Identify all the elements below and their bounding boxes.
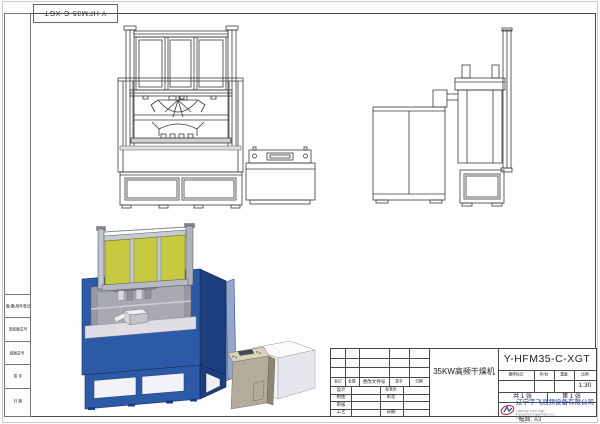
isometric-view-drawing bbox=[68, 223, 318, 415]
info-header-mark: 图样标记 bbox=[498, 370, 534, 380]
role-standardize: 标准化 bbox=[380, 386, 403, 394]
role-approve: 审定 bbox=[380, 394, 403, 402]
role-draft: 制图 bbox=[331, 394, 351, 402]
margin-cell-master-no: 底图总号 bbox=[5, 341, 30, 365]
info-header-qty: 件/台 bbox=[534, 370, 554, 380]
role-design: 设计 bbox=[331, 386, 351, 394]
margin-cell-signature: 签 字 bbox=[5, 364, 30, 389]
rev-header-sign: 签字 bbox=[389, 377, 409, 386]
company-name: 辽宁宇飞高频设备有限公司 bbox=[516, 396, 596, 406]
margin-cell-old-master-no: 旧底图总号 bbox=[5, 317, 30, 342]
rev-header-count: 处数 bbox=[345, 377, 359, 386]
role-process: 工艺 bbox=[331, 409, 351, 417]
side-view-drawing bbox=[353, 26, 515, 208]
paper-size-label: 幅面: A3 bbox=[500, 415, 560, 424]
role-date: 日期 bbox=[380, 409, 403, 417]
drawing-sheet: Y-HFM35-C-XGT 借(通)用件登记 旧底图总号 底图总号 签 字 日 … bbox=[0, 0, 600, 424]
rev-header-mark: 标记 bbox=[331, 377, 345, 386]
part-name: 35KW高频干燥机 bbox=[430, 366, 498, 378]
info-header-weight: 重量 bbox=[554, 370, 574, 380]
binding-margin: 借(通)用件登记 旧底图总号 底图总号 签 字 日 期 bbox=[4, 13, 31, 417]
info-header-scale: 比例 bbox=[574, 370, 596, 380]
margin-cell-borrow: 借(通)用件登记 bbox=[5, 294, 30, 318]
company-logo bbox=[500, 404, 515, 416]
scale-value: 1:30 bbox=[574, 380, 596, 392]
drawing-number: Y-HFM35-C-XGT bbox=[498, 349, 596, 370]
role-check: 审核 bbox=[331, 401, 351, 409]
front-view-drawing bbox=[95, 20, 320, 210]
title-block: 标记 处数 更改文件号 签字 日期 设计 制图 审核 工艺 标准化 审定 日期 … bbox=[330, 348, 597, 417]
rev-header-docno: 更改文件号 bbox=[359, 377, 389, 386]
role-blank bbox=[380, 401, 403, 409]
rev-header-date: 日期 bbox=[409, 377, 429, 386]
margin-cell-date: 日 期 bbox=[5, 388, 30, 415]
corner-drawing-number: Y-HFM35-C-XGT bbox=[44, 9, 106, 18]
